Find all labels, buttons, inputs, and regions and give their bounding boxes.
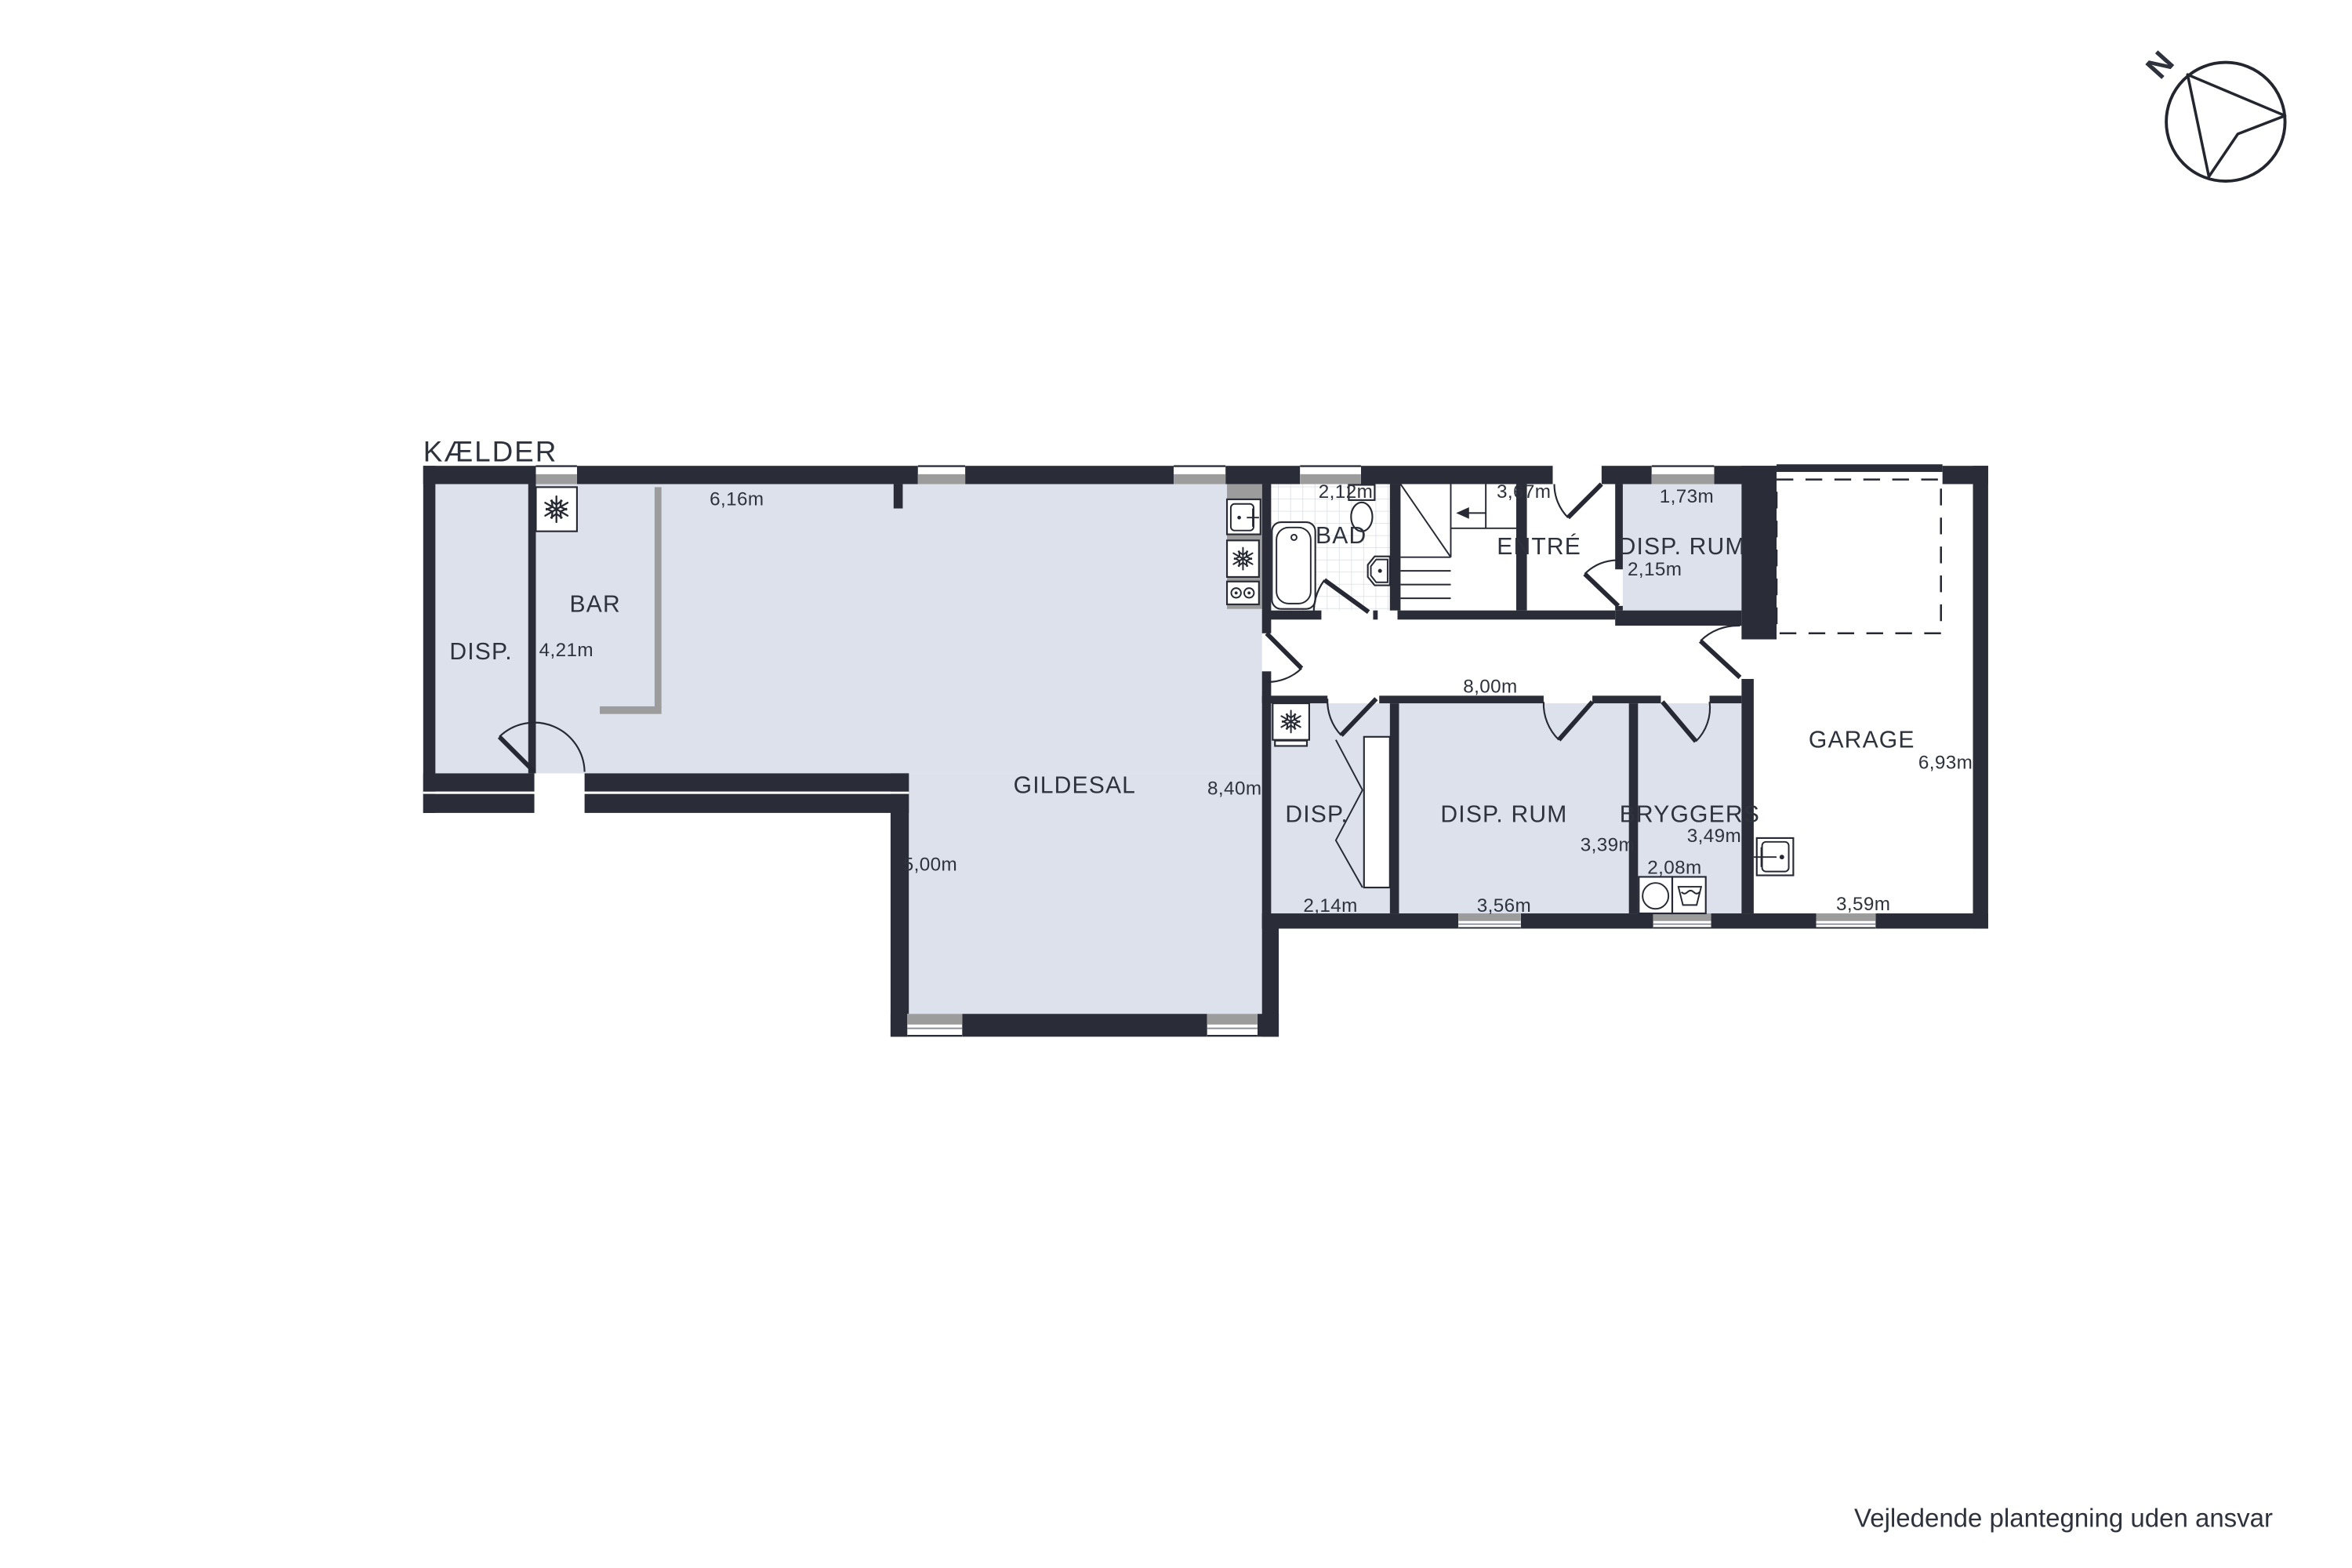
- bathtub-icon: [1272, 522, 1315, 609]
- dim-212: 2,12m: [1319, 481, 1373, 503]
- wall-seam: [423, 792, 535, 794]
- laundry-sink-icon: [1672, 877, 1706, 913]
- room-label-bad: BAD: [1316, 523, 1367, 549]
- dim-215: 2,15m: [1628, 559, 1682, 580]
- window: [1652, 465, 1715, 484]
- window: [535, 465, 576, 484]
- dim-367: 3,67m: [1497, 481, 1551, 503]
- freezer-icon: [1227, 540, 1259, 577]
- dim-421: 4,21m: [539, 640, 593, 661]
- room-label-garage: GARAGE: [1809, 727, 1915, 753]
- dim-173: 1,73m: [1660, 486, 1714, 507]
- washing-machine-icon: [1639, 877, 1672, 913]
- room-label-disp-mid: DISP.: [1285, 802, 1348, 828]
- dim-840: 8,40m: [1207, 779, 1261, 800]
- sink-icon: [1754, 838, 1793, 876]
- dim-339: 3,39m: [1581, 834, 1635, 855]
- room-label-disp-rum-mid: DISP. RUM: [1440, 802, 1567, 828]
- window: [1207, 1014, 1258, 1036]
- window: [1653, 913, 1711, 928]
- page-title: KÆLDER: [423, 435, 557, 467]
- room-label-gildesal: GILDESAL: [1014, 773, 1136, 799]
- wall-seam: [585, 792, 909, 794]
- compass-icon: N: [2139, 44, 2285, 181]
- floor-gildesal-lower: [909, 773, 1261, 1014]
- sink-icon: [1227, 499, 1261, 535]
- freezer-icon: [535, 487, 576, 531]
- dim-800: 8,00m: [1463, 676, 1517, 697]
- dim-349: 3,49m: [1687, 826, 1741, 847]
- dim-359: 3,59m: [1836, 894, 1890, 915]
- dim-214: 2,14m: [1303, 895, 1357, 916]
- room-label-bar: BAR: [570, 592, 621, 618]
- window: [918, 465, 965, 484]
- room-label-bryggers: BRYGGERS: [1620, 802, 1760, 828]
- room-label-disp-rum-top: DISP. RUM: [1619, 534, 1746, 560]
- room-label-disp-left: DISP.: [449, 639, 513, 665]
- stove-icon: [1227, 582, 1259, 604]
- window: [907, 1014, 962, 1036]
- window: [1174, 465, 1225, 484]
- dim-500: 5,00m: [903, 855, 957, 876]
- dim-356: 3,56m: [1477, 895, 1531, 916]
- sink-icon: [1368, 557, 1390, 586]
- freezer-icon: [1272, 703, 1309, 746]
- compass-north-label: N: [2139, 44, 2181, 85]
- window: [1817, 913, 1876, 928]
- disclaimer-text: Vejledende plantegning uden ansvar: [1854, 1504, 2273, 1533]
- entrance-opening: [1553, 466, 1602, 484]
- dim-616: 6,16m: [710, 489, 764, 510]
- floor-plan: KÆLDER DISP. BAR GILDESAL BAD ENTRÉ DISP…: [0, 0, 2352, 1568]
- room-label-entre: ENTRÉ: [1497, 534, 1581, 560]
- dim-693: 6,93m: [1918, 753, 1973, 774]
- dim-208: 2,08m: [1647, 858, 1701, 879]
